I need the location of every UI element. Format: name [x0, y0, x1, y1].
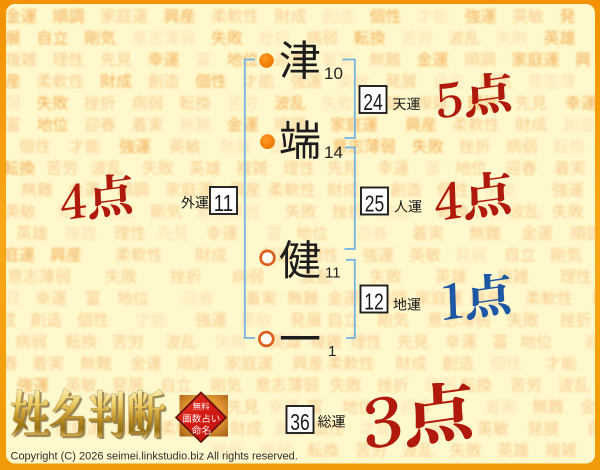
svg-text:1: 1: [328, 343, 336, 360]
svg-text:Copyright (C) 2026 seimei.link: Copyright (C) 2026 seimei.linkstudio.biz…: [11, 451, 298, 463]
svg-text:25: 25: [365, 191, 385, 217]
svg-text:24: 24: [363, 89, 383, 115]
svg-text:10: 10: [324, 64, 343, 83]
svg-text:12: 12: [364, 289, 384, 315]
svg-text:36: 36: [290, 409, 310, 435]
svg-text:11: 11: [325, 265, 341, 282]
svg-text:11: 11: [214, 190, 234, 216]
svg-text:14: 14: [324, 143, 343, 162]
